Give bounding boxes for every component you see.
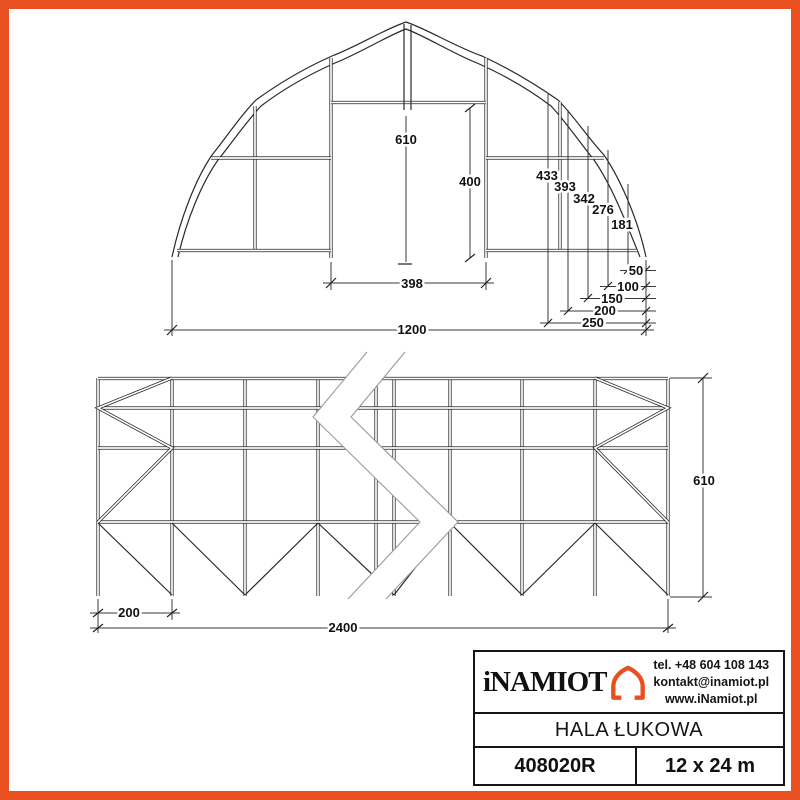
product-name-row: HALA ŁUKOWA (475, 714, 783, 748)
dim-label-side-height: 610 (693, 473, 715, 488)
model-size-row: 408020R 12 x 24 m (475, 748, 783, 784)
dim-label-total-length: 2400 (329, 620, 358, 635)
dim-label-offset250: 250 (582, 315, 604, 330)
end-bracing-left (98, 378, 172, 522)
model-number: 408020R (475, 748, 637, 784)
title-block: iNAMIOT tel. +48 604 108 143 kontakt@ina… (473, 650, 785, 786)
front-dimensions: 610 400 398 1200 433 393 342 276 181 50 (164, 94, 656, 337)
break-symbol (313, 352, 458, 599)
dim-label-door-width: 398 (401, 276, 423, 291)
dim-label-h100: 276 (592, 202, 614, 217)
dim-label-door-height: 400 (459, 174, 481, 189)
title-block-header-row: iNAMIOT tel. +48 604 108 143 kontakt@ina… (475, 652, 783, 714)
brand-logo-text: iNAMIOT (483, 668, 607, 697)
hall-size: 12 x 24 m (637, 748, 783, 784)
side-elevation-drawing: 200 2400 610 (90, 352, 715, 635)
end-bracing-right (595, 378, 668, 522)
front-elevation-drawing: 610 400 398 1200 433 393 342 276 181 50 (164, 22, 656, 337)
dim-label-ridge-height: 610 (395, 132, 417, 147)
brand-logo: iNAMIOT (475, 663, 646, 702)
contact-phone: tel. +48 604 108 143 (646, 657, 778, 674)
product-name: HALA ŁUKOWA (555, 719, 703, 742)
dim-label-total-width: 1200 (398, 322, 427, 337)
contact-info: tel. +48 604 108 143 kontakt@inamiot.pl … (646, 657, 778, 708)
contact-email: kontakt@inamiot.pl (646, 674, 778, 691)
tent-icon (610, 665, 646, 702)
dim-label-bay: 200 (118, 605, 140, 620)
contact-website: www.iNamiot.pl (646, 691, 778, 708)
dim-label-offset50: 50 (629, 263, 643, 278)
dim-label-h50: 181 (611, 217, 633, 232)
